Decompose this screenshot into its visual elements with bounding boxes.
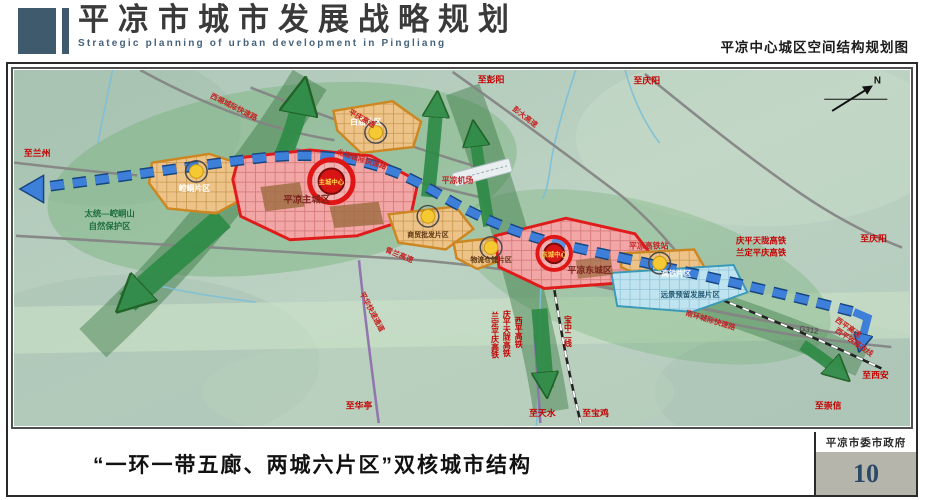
map-label: 物流仓储片区	[470, 255, 512, 264]
map-label: 至华亭	[346, 399, 373, 410]
map-label: 至兰州	[24, 147, 51, 158]
map-label: 至西安	[862, 369, 889, 380]
map-label: N	[874, 76, 881, 87]
page-subtitle-english: Strategic planning of urban development …	[78, 38, 518, 49]
map-sheet-title: 平凉中心城区空间结构规划图	[721, 36, 910, 56]
footer: “一环一带五廊、两城六片区”双核城市结构 平凉市委市政府 10	[8, 432, 916, 495]
map-label: 自然保护区	[89, 221, 132, 231]
map-label: 兰定平庆高铁	[736, 247, 787, 257]
agency-stamp: 平凉市委市政府 10	[814, 432, 916, 495]
document-frame: 至兰州崆峒片区太统—崆峒山自然保护区平凉主城区主城中心白庙片区西塬城际快速路平庆…	[6, 62, 918, 497]
page-title: 平凉市城市发展战略规划	[78, 2, 518, 38]
map-label: 西平高铁	[514, 317, 523, 349]
map-label: 平凉主城区	[283, 194, 330, 205]
map-area: 至兰州崆峒片区太统—崆峒山自然保护区平凉主城区主城中心白庙片区西塬城际快速路平庆…	[11, 67, 913, 429]
document-page: 平凉市城市发展战略规划 Strategic planning of urban …	[0, 0, 925, 500]
map-label: 至彭阳	[478, 74, 505, 85]
map-label: 兰定平庆高铁	[490, 311, 499, 360]
map-label: 平凉高铁站	[629, 241, 669, 251]
map-label: 崆峒片区	[179, 183, 211, 193]
logo-square	[18, 8, 56, 54]
logo-vertical-bar	[62, 8, 69, 54]
map-label: 远景预留发展片区	[661, 290, 721, 299]
header: 平凉市城市发展战略规划 Strategic planning of urban …	[0, 0, 925, 62]
page-number: 10	[816, 452, 916, 495]
map-label: 商贸批发片区	[407, 230, 449, 239]
agency-name: 平凉市委市政府	[816, 432, 916, 452]
map-label: 高铁片区	[662, 269, 692, 278]
map-label: 主城中心	[319, 177, 345, 186]
map-label: 平凉东城区	[568, 264, 612, 275]
map-label: 宝中二线	[563, 315, 572, 348]
map-label: 至庆阳	[634, 75, 661, 86]
map-label: 至天水	[529, 407, 556, 418]
planning-map: 至兰州崆峒片区太统—崆峒山自然保护区平凉主城区主城中心白庙片区西塬城际快速路平庆…	[14, 70, 910, 426]
map-label: 东城中心	[541, 249, 567, 258]
header-titles: 平凉市城市发展战略规划 Strategic planning of urban …	[78, 2, 518, 49]
map-label: 至崇信	[815, 399, 842, 410]
map-label: 至宝鸡	[582, 407, 609, 418]
map-label: 至庆阳	[860, 233, 887, 244]
map-label: 平凉机场	[442, 175, 474, 185]
plan-structure-caption: “一环一带五廊、两城六片区”双核城市结构	[8, 432, 814, 495]
map-label: 庆平天陇高铁	[735, 236, 787, 246]
map-label: 太统—崆峒山	[83, 208, 134, 218]
map-label: 庆平天陇高铁	[502, 309, 511, 358]
